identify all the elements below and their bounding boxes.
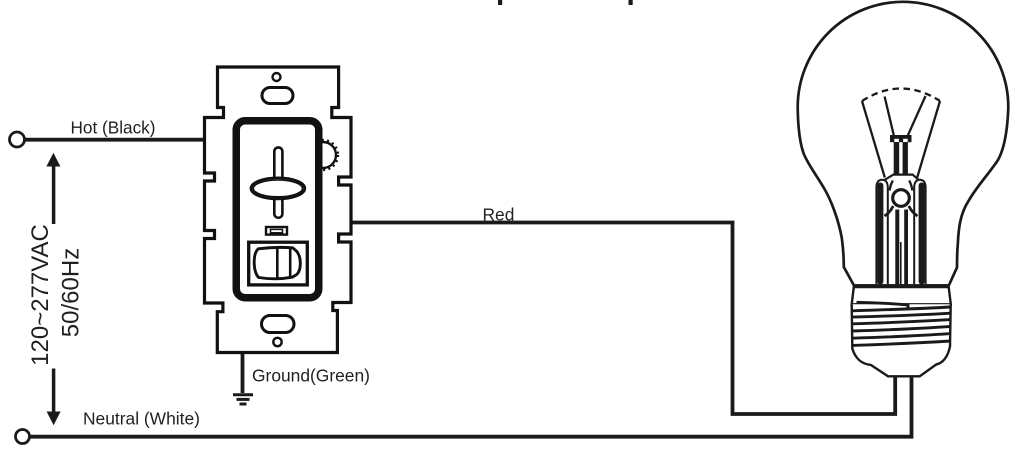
svg-text:Hot (Black): Hot (Black) xyxy=(71,117,156,137)
svg-text:Red: Red xyxy=(483,204,515,224)
svg-text:Neutral (White): Neutral (White) xyxy=(83,409,200,429)
svg-text:Ground(Green): Ground(Green) xyxy=(252,365,370,385)
svg-text:50/60Hz: 50/60Hz xyxy=(58,248,85,337)
svg-text:120~277VAC: 120~277VAC xyxy=(27,224,54,366)
